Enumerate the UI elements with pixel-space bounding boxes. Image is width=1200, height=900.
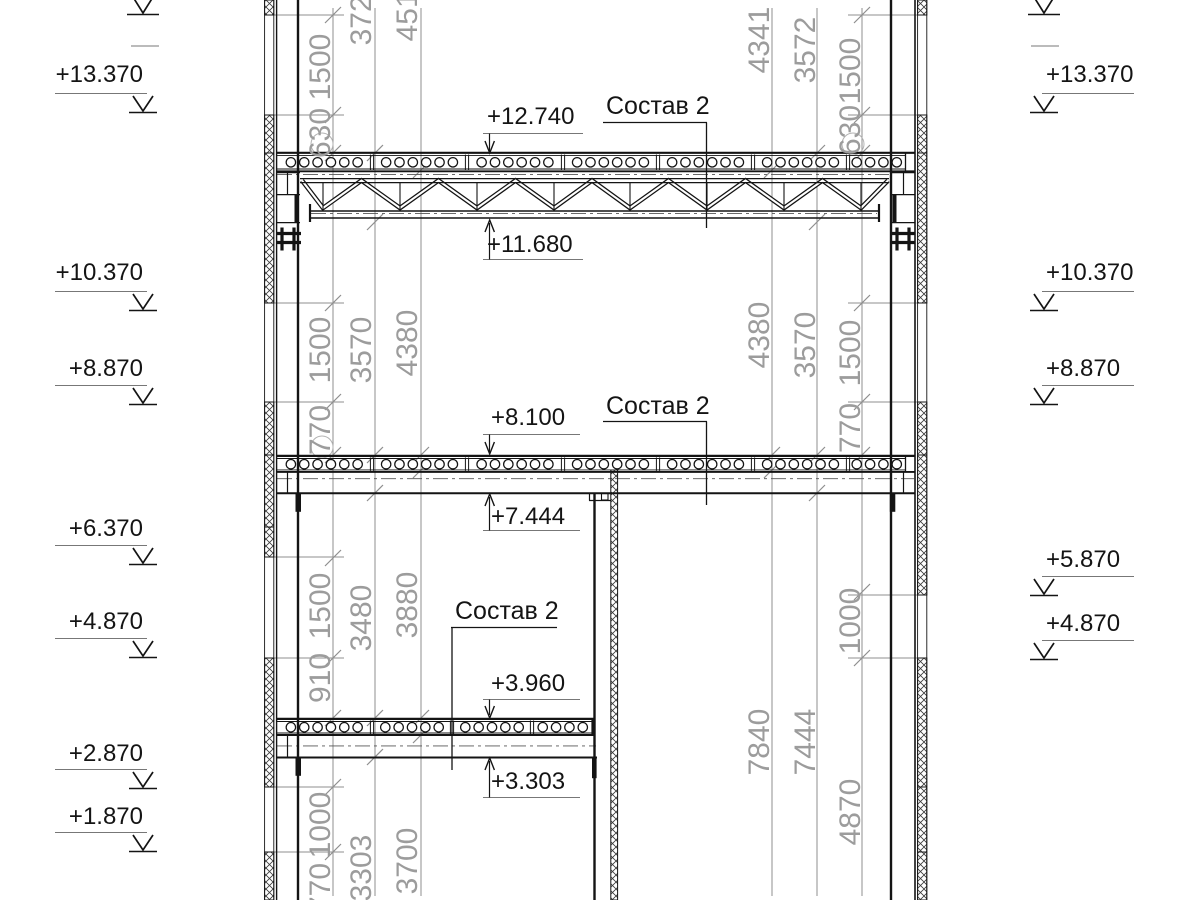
level-callout: +3.303 bbox=[491, 769, 565, 795]
dimension-text: 1000 bbox=[306, 792, 336, 859]
dimension-text: 4341 bbox=[745, 7, 775, 74]
dimension-text: 1500 bbox=[306, 34, 336, 101]
level-callout: +7.444 bbox=[491, 504, 565, 530]
composition-callout: Состав 2 bbox=[455, 598, 559, 624]
dimension-text: 7444 bbox=[791, 709, 821, 776]
elevation-label-left: +6.370 bbox=[0, 516, 143, 542]
dimension-text: 770 bbox=[306, 863, 336, 900]
elevation-label-left: +2.870 bbox=[0, 741, 143, 767]
elevation-label-right: +5.870 bbox=[1046, 547, 1120, 573]
dimension-text: 3700 bbox=[393, 828, 423, 895]
dimension-text: 1500 bbox=[836, 38, 866, 105]
dimension-text: 3724 bbox=[347, 0, 377, 45]
dimension-text: 4380 bbox=[745, 302, 775, 369]
elevation-label-right: +8.870 bbox=[1046, 356, 1120, 382]
elevation-label-right: +13.370 bbox=[1046, 62, 1133, 88]
dimension-text: 7840 bbox=[745, 709, 775, 776]
composition-callout: Состав 2 bbox=[606, 93, 710, 119]
dimension-text: 3570 bbox=[347, 317, 377, 384]
floor-slabs bbox=[277, 153, 916, 758]
level-callout: +3.960 bbox=[491, 671, 565, 697]
level-callout: +12.740 bbox=[487, 104, 574, 130]
dimension-text: 3303 bbox=[347, 835, 377, 900]
section-linework bbox=[0, 0, 1200, 900]
dimension-text: 3880 bbox=[393, 572, 423, 639]
dimension-text: 3570 bbox=[791, 312, 821, 379]
elevation-label-left: +10.370 bbox=[0, 260, 143, 286]
dimension-text: 770 bbox=[306, 405, 336, 455]
elevation-label-right: +10.370 bbox=[1046, 260, 1133, 286]
elevation-label-left: +8.870 bbox=[0, 356, 143, 382]
steel-truss bbox=[300, 179, 889, 222]
dimension-text: 3480 bbox=[347, 585, 377, 652]
elevation-label-left: +4.870 bbox=[0, 609, 143, 635]
dimension-text: 1500 bbox=[836, 320, 866, 387]
dimension-lines bbox=[311, 8, 864, 896]
elevation-label-left: +13.370 bbox=[0, 62, 143, 88]
dimension-text: 4380 bbox=[393, 310, 423, 377]
dimension-text: 770 bbox=[836, 403, 866, 453]
section-drawing: +12.740 Состав 2 +11.680 +8.100 Состав 2… bbox=[0, 0, 1200, 900]
composition-callout: Состав 2 bbox=[606, 393, 710, 419]
dimension-text: 630 bbox=[306, 108, 336, 158]
elevation-label-right: +4.870 bbox=[1046, 611, 1120, 637]
dimension-text: 4516 bbox=[393, 0, 423, 41]
dimension-text: 4870 bbox=[836, 779, 866, 846]
elevation-label-left: +1.870 bbox=[0, 804, 143, 830]
dimension-text: 1000 bbox=[836, 588, 866, 655]
level-callout: +8.100 bbox=[491, 405, 565, 431]
dimension-text: 1500 bbox=[306, 573, 336, 640]
dimension-text: 3572 bbox=[791, 17, 821, 84]
dimension-text: 1500 bbox=[306, 317, 336, 384]
dimension-ticks bbox=[266, 7, 926, 860]
dimension-text: 910 bbox=[306, 653, 336, 703]
dimension-text: 630 bbox=[836, 105, 866, 155]
level-callout: +11.680 bbox=[487, 232, 573, 258]
